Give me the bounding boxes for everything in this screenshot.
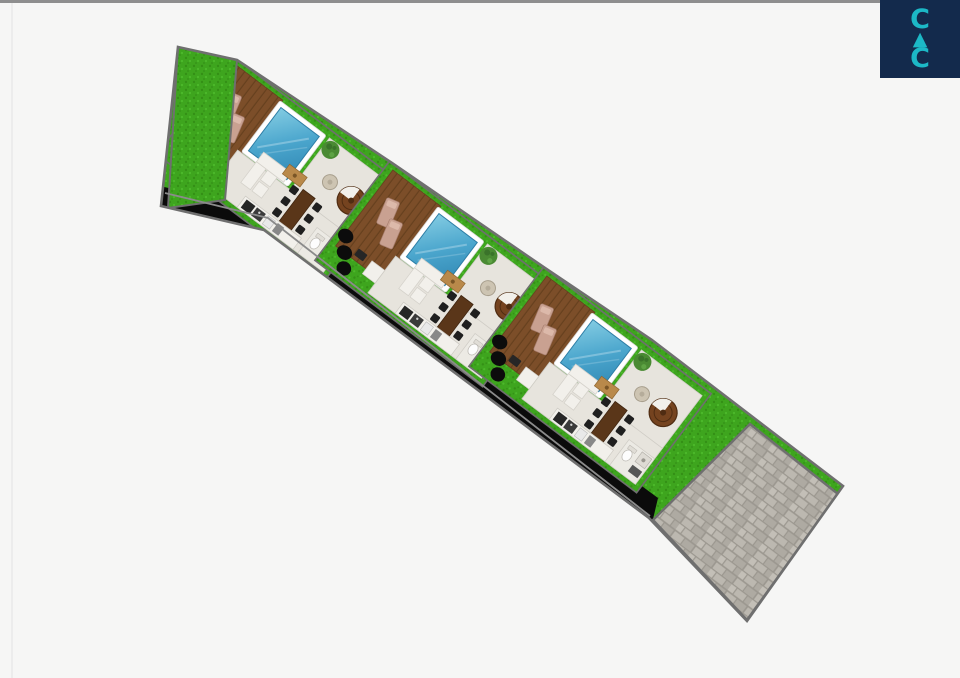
site-plan-svg: [0, 0, 960, 678]
lawn-cap: [168, 47, 237, 208]
logo-letter-bottom: C: [910, 48, 930, 70]
brand-logo: C ▲ C: [880, 0, 960, 78]
parcel-area: [153, 47, 843, 621]
canvas: C ▲ C: [0, 0, 960, 678]
